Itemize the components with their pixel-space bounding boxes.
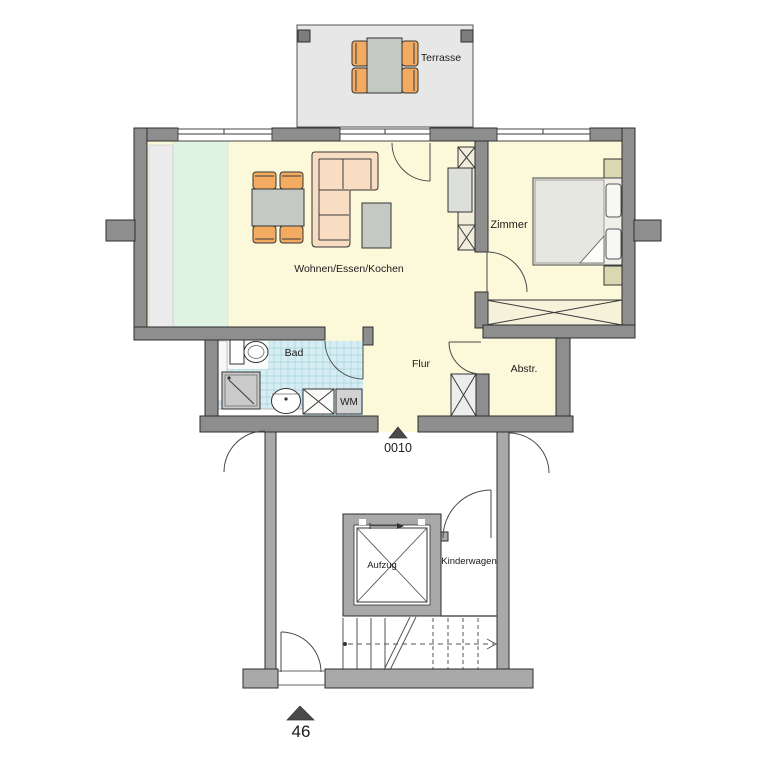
neighbor-door-left xyxy=(224,431,265,472)
washing-machine-label: WM xyxy=(340,397,358,408)
level-number: 46 xyxy=(292,722,311,741)
wall-bath-door-jamb xyxy=(363,327,373,345)
dining-chair xyxy=(253,226,276,243)
stairwell-wall-bottom-left xyxy=(243,669,278,688)
terrace-chair xyxy=(402,41,418,66)
living-label: Wohnen/Essen/Kochen xyxy=(294,263,404,275)
wall-living-bedroom-stub xyxy=(475,292,488,328)
building-entrance-door xyxy=(281,632,321,672)
stroller-door-jamb xyxy=(441,532,448,541)
st airwell-wall-bottom xyxy=(325,669,533,688)
wall-right xyxy=(622,128,635,338)
bedroom-door-threshold xyxy=(475,252,488,292)
window xyxy=(497,129,590,141)
stairs xyxy=(343,616,497,670)
hallway-label: Flur xyxy=(412,358,431,370)
entrance-triangle-icon xyxy=(287,706,314,720)
wall-top-pier xyxy=(430,128,497,141)
terrace-chair xyxy=(402,68,418,93)
toilet-tank xyxy=(230,340,244,364)
stroller-room-door xyxy=(441,490,491,541)
stair-direction-arrow xyxy=(343,639,496,649)
washbasin xyxy=(272,389,301,414)
nightstand xyxy=(604,266,622,285)
window xyxy=(178,129,272,141)
pillow xyxy=(606,229,621,259)
terrace-chair xyxy=(352,68,368,93)
elevator-door-jamb xyxy=(359,519,366,525)
neighbor-door-right xyxy=(509,433,549,473)
elevator-door-jamb xyxy=(418,519,425,525)
bathroom-label: Bad xyxy=(285,347,304,359)
wall-living-bottom xyxy=(134,327,325,340)
terrace-table xyxy=(367,38,402,93)
dining-chair xyxy=(280,172,303,189)
building-entrance-marker: 46 xyxy=(287,706,314,741)
wall-bottom-right xyxy=(418,416,573,432)
terrace-label: Terrasse xyxy=(421,52,461,64)
storage-floor xyxy=(488,338,556,418)
windows xyxy=(178,129,590,141)
wall-bedroom-bottom xyxy=(483,325,635,338)
dining-chair xyxy=(280,226,303,243)
terrace-post-right xyxy=(461,30,473,42)
shower-drain xyxy=(227,376,230,379)
wall-storage-left xyxy=(476,374,489,418)
wall-top-pier xyxy=(272,128,340,141)
wall-living-bedroom xyxy=(475,141,488,252)
stroller-label: Kinderwagen xyxy=(441,556,496,567)
terrace-post-left xyxy=(298,30,310,42)
elevator-label: Aufzug xyxy=(367,560,397,571)
wall-bath-left xyxy=(205,340,218,416)
window-strip xyxy=(149,145,173,327)
wall-left xyxy=(134,128,147,340)
hall-cabinet xyxy=(451,374,476,416)
window xyxy=(340,129,430,141)
terrace-chair xyxy=(352,41,368,66)
hall-connector-floor xyxy=(373,327,483,340)
wall-storage-right xyxy=(556,338,570,418)
stairwell-wall-right xyxy=(497,432,509,672)
stairwell: Aufzug Kinderwagen xyxy=(224,431,549,688)
wall-stub-right xyxy=(634,220,661,241)
nightstand xyxy=(604,159,622,178)
bedroom-label: Zimmer xyxy=(490,219,528,231)
terrace-dining-set xyxy=(352,38,418,93)
stairwell-wall-left xyxy=(265,432,276,672)
apartment-number: 0010 xyxy=(384,441,412,455)
floor-plan-page: Terrasse xyxy=(0,0,757,757)
wall-bottom-left xyxy=(200,416,378,432)
kitchen-zone xyxy=(173,141,228,327)
floor-plan: Terrasse xyxy=(0,0,757,757)
elevator: Aufzug xyxy=(343,514,441,616)
building-entrance-sill xyxy=(278,671,325,685)
coffee-table xyxy=(362,203,391,248)
sideboard xyxy=(448,168,472,212)
terrace: Terrasse xyxy=(297,25,473,127)
dining-chair xyxy=(253,172,276,189)
washing-machine: WM xyxy=(336,389,362,414)
shower xyxy=(222,372,260,409)
wardrobe xyxy=(486,300,622,325)
washer-space xyxy=(303,389,334,414)
washbasin-drain xyxy=(284,397,287,400)
pillow xyxy=(606,184,621,217)
bathroom-door-threshold xyxy=(325,327,363,341)
wall-stub-left xyxy=(106,220,135,241)
storage-label: Abstr. xyxy=(511,363,538,375)
dining-table xyxy=(252,189,304,226)
